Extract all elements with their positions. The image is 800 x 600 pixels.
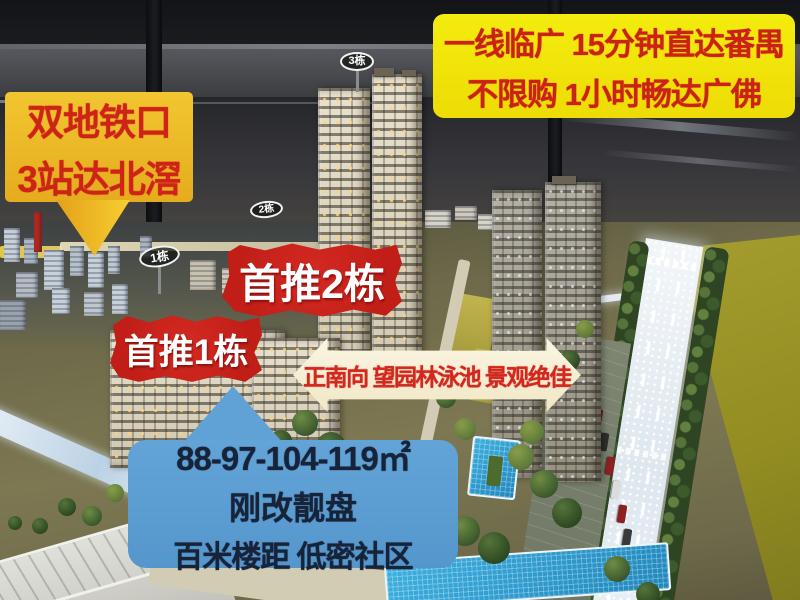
- mini-building: [44, 250, 64, 290]
- mini-building: [52, 288, 70, 314]
- double-arrow-label: 正南向 望园林泳池 景观绝佳: [303, 358, 571, 392]
- ribbon-tower-2-label: 首推2栋: [239, 250, 385, 310]
- top-left-badge: 双地铁口 3站达北滘: [5, 92, 193, 202]
- tree: [32, 518, 48, 534]
- mini-building: [108, 246, 120, 274]
- banner-line-2: 不限购 1小时畅达广佛: [467, 69, 761, 114]
- pool-planter-island: [486, 455, 503, 486]
- info-bubble: 88-97-104-119㎡ 刚改靓盘 百米楼距 低密社区: [128, 440, 458, 568]
- road-crosswalk: [646, 256, 696, 271]
- bubble-line-2: 刚改靓盘: [229, 483, 357, 529]
- mini-building: [455, 206, 477, 220]
- real-estate-ad-image: 3栋 2栋 1栋 一线临广 15分钟直达番禺 不限购 1小时畅达广佛 双地铁口 …: [0, 0, 800, 600]
- tree: [82, 506, 102, 526]
- tree: [576, 320, 594, 338]
- tree: [636, 582, 660, 600]
- mini-red-tower: [34, 212, 42, 252]
- tree: [604, 556, 630, 582]
- bubble-area-range: 88-97-104-119㎡: [176, 432, 410, 480]
- road-crosswalk-2: [616, 446, 666, 461]
- banner-line-1: 一线临广 15分钟直达番禺: [444, 19, 784, 64]
- tower-3-sign-label: 3栋: [348, 56, 365, 67]
- tree: [454, 418, 476, 440]
- mini-building: [70, 246, 84, 276]
- tree: [520, 420, 544, 444]
- mini-building: [0, 300, 26, 330]
- tree: [478, 532, 510, 564]
- badge-line-2: 3站达北滘: [17, 149, 181, 203]
- tower-roof-equipment-2: [402, 70, 416, 76]
- tower-3-right: [372, 74, 422, 392]
- tree: [530, 470, 558, 498]
- tower-roof-equipment-3: [552, 176, 576, 184]
- tree: [106, 484, 124, 502]
- tower-2-sign-label: 2栋: [258, 204, 275, 216]
- top-right-banner: 一线临广 15分钟直达番禺 不限购 1小时畅达广佛: [433, 14, 795, 118]
- mini-building: [16, 272, 38, 298]
- mini-building: [4, 228, 20, 262]
- mini-building: [88, 252, 104, 288]
- mini-building: [190, 260, 216, 290]
- tower-roof-equipment: [374, 68, 394, 76]
- ribbon-tower-1: 首推1栋: [110, 314, 262, 384]
- tower-1-sign-pole: [158, 266, 161, 294]
- badge-line-1: 双地铁口: [27, 92, 171, 146]
- tree: [552, 498, 582, 528]
- mini-building: [425, 210, 451, 228]
- tree: [508, 444, 534, 470]
- bubble-line-3: 百米楼距 低密社区: [173, 532, 412, 576]
- ribbon-tower-2: 首推2栋: [222, 242, 402, 318]
- mini-building: [112, 284, 128, 314]
- tower-3-sign-pole: [356, 70, 359, 92]
- ribbon-tower-1-label: 首推1栋: [124, 324, 248, 375]
- tree: [8, 516, 22, 530]
- tower-1-sign-label: 1栋: [149, 249, 169, 264]
- tree: [58, 498, 76, 516]
- tower-3-sign: 3栋: [340, 52, 374, 71]
- mini-building: [84, 292, 104, 316]
